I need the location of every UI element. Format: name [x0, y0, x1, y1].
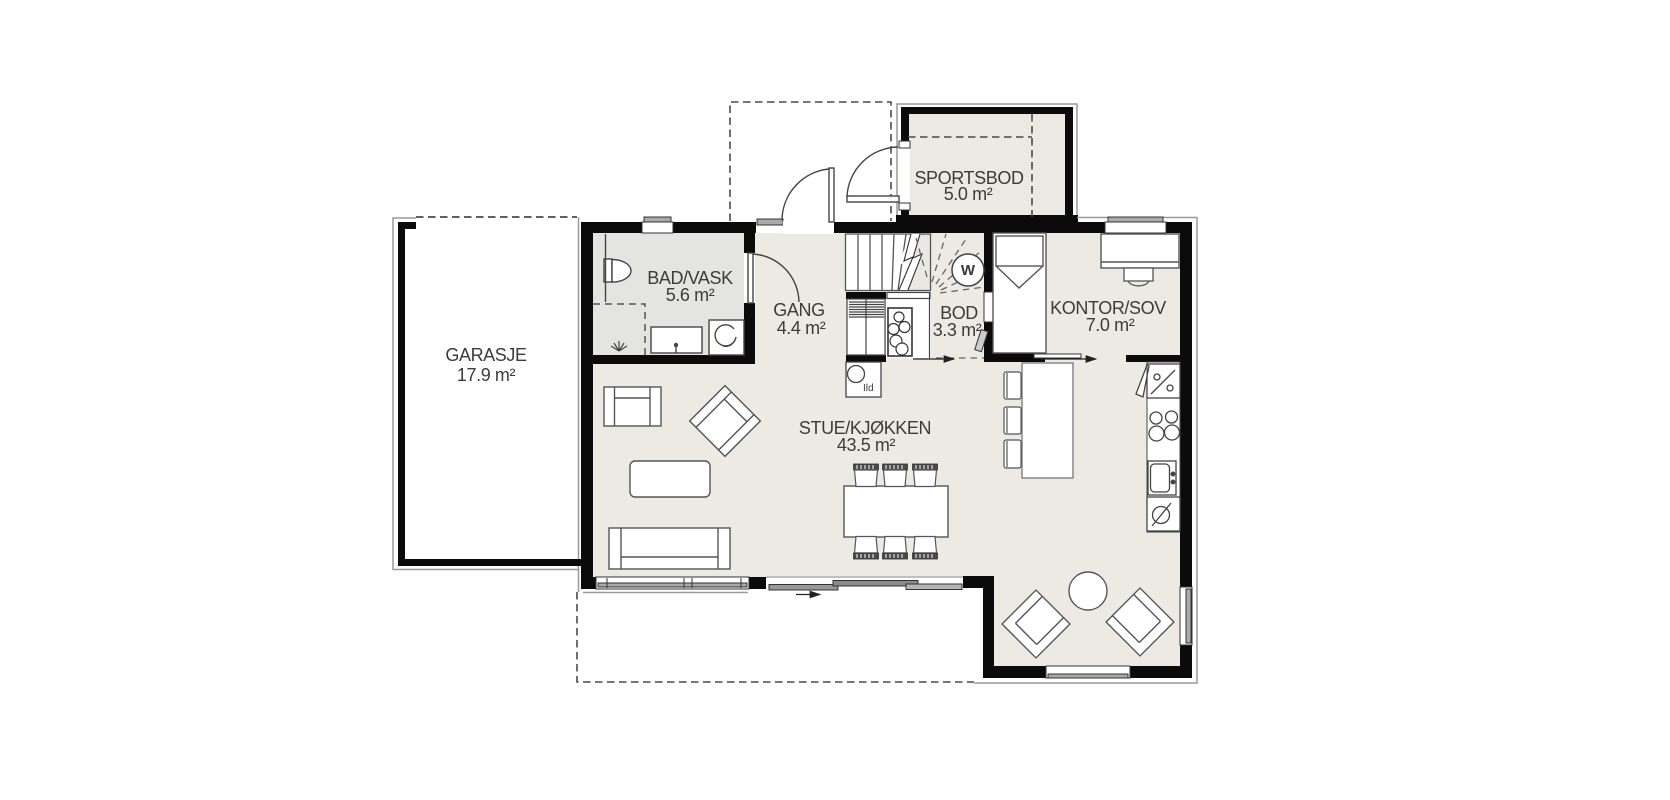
- svg-text:5.6 m²: 5.6 m²: [666, 285, 715, 305]
- svg-text:3.3 m²: 3.3 m²: [933, 320, 982, 340]
- svg-text:GARASJE: GARASJE: [445, 345, 527, 365]
- svg-text:W: W: [961, 262, 976, 279]
- svg-text:GANG: GANG: [773, 300, 824, 320]
- svg-text:4.4 m²: 4.4 m²: [777, 318, 826, 338]
- svg-text:17.9 m²: 17.9 m²: [457, 365, 516, 385]
- svg-text:Ild: Ild: [863, 383, 874, 394]
- svg-text:43.5 m²: 43.5 m²: [837, 435, 896, 455]
- svg-text:5.0 m²: 5.0 m²: [944, 184, 993, 204]
- svg-text:7.0 m²: 7.0 m²: [1086, 315, 1135, 335]
